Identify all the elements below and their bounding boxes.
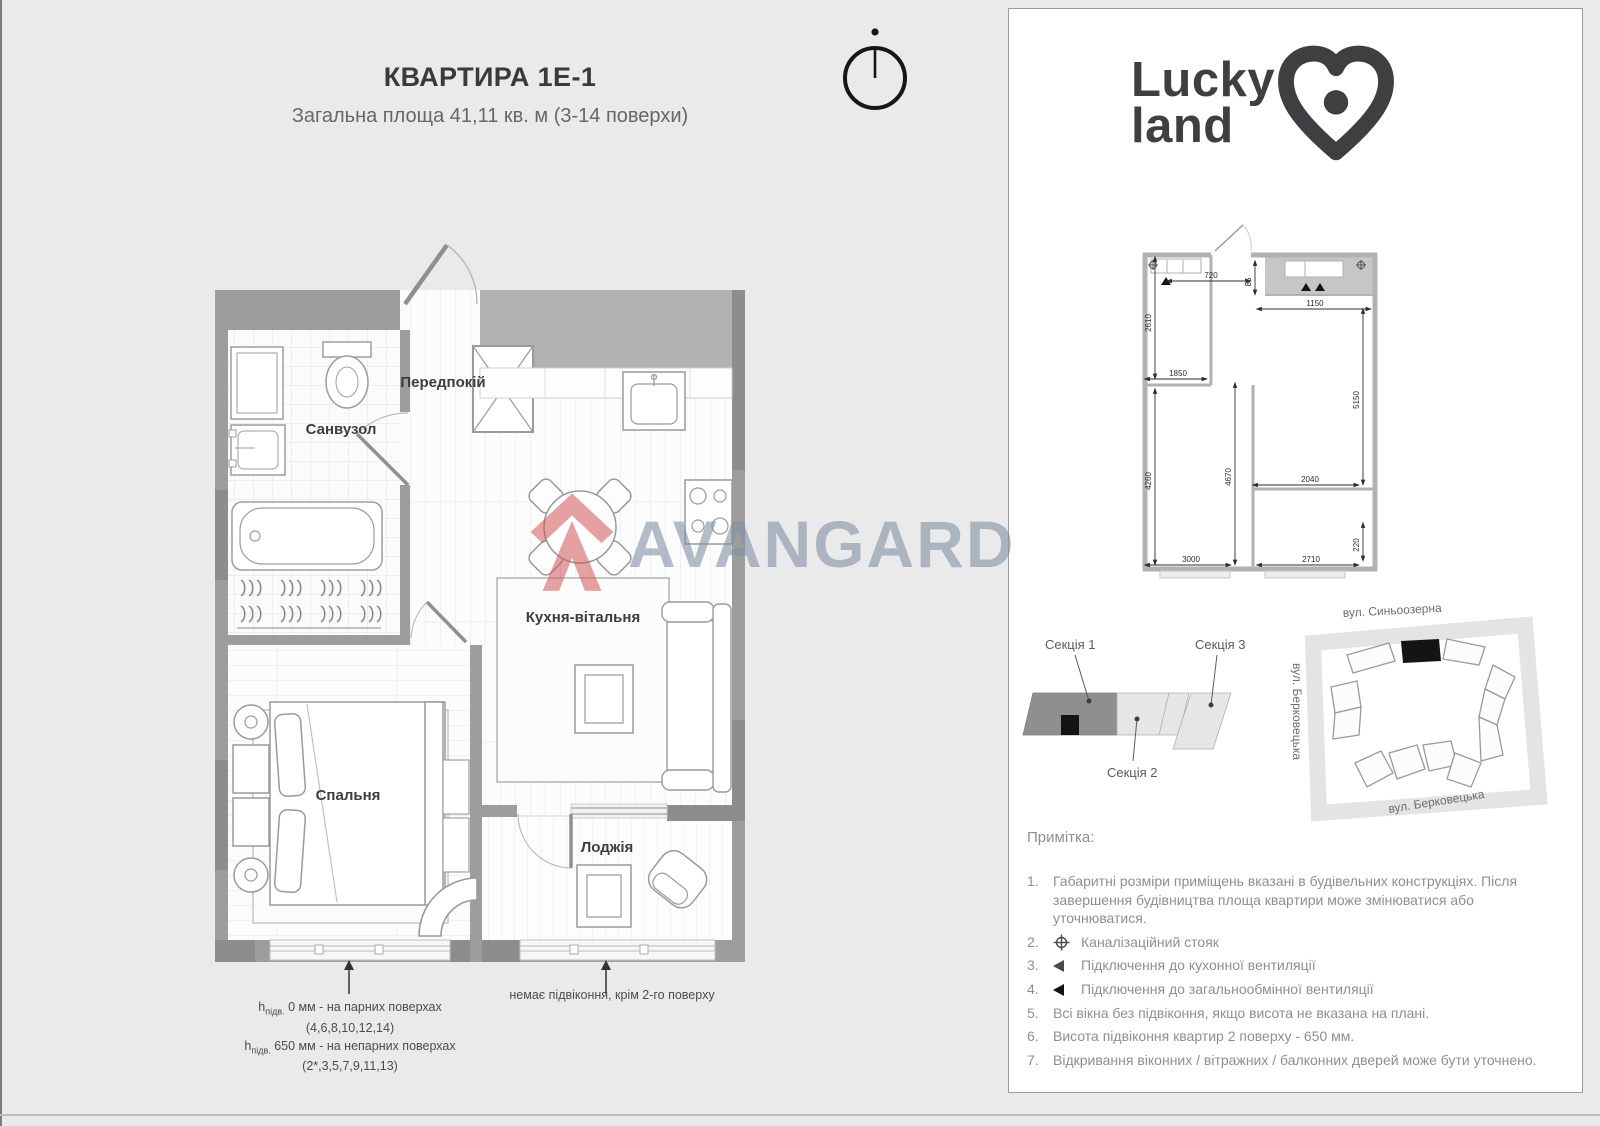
loggia-window (520, 940, 715, 960)
kitchen-sink-icon (623, 372, 685, 430)
dimension-label: 2710 (1302, 555, 1320, 564)
sofa-icon (662, 602, 731, 792)
note-item: 3. Підключення до кухонної вентиляції (1027, 956, 1572, 975)
bathroom-sink-icon (229, 425, 285, 475)
dimension-label: 720 (1204, 271, 1218, 280)
sill-arrow-left-icon (343, 960, 355, 996)
note-item: 6. Висота підвіконня квартир 2 поверху -… (1027, 1027, 1572, 1046)
page-subtitle: Загальна площа 41,11 кв. м (3-14 поверхи… (140, 105, 840, 128)
brand-logo-line2: land (1131, 103, 1275, 149)
dimension-label: 1150 (1306, 299, 1324, 308)
mini-plan: 720 85 1150 2610 1850 4260 4670 5150 204… (1115, 217, 1415, 585)
kitchen-loggia-window (571, 804, 667, 818)
sill-note-left: hпідв. 0 мм - на парних поверхах (4,6,8,… (190, 998, 510, 1075)
kitchen-vent-icon (1053, 956, 1081, 975)
section-2-label: Секція 2 (1107, 765, 1158, 780)
brand-logo-line1: Lucky (1131, 57, 1275, 103)
drain-icon (1053, 933, 1081, 952)
bedroom-window (270, 940, 450, 960)
stove-icon (685, 480, 732, 544)
sill-note-left-line2: hпідв. 650 мм - на непарних поверхах (190, 1037, 510, 1058)
sill-note-right: немає підвіконня, крім 2-го поверху (462, 986, 762, 1004)
section-diagram: Секція 1 Секція 3 Секція 2 (1017, 631, 1277, 786)
section-1-label: Секція 1 (1045, 637, 1096, 652)
notes-heading: Примітка: (1027, 829, 1572, 846)
heart-logo-icon (1275, 45, 1397, 167)
dimension-label: 2610 (1144, 314, 1153, 332)
mini-plan-dimensions (1149, 261, 1371, 565)
street-label-top: вул. Синьоозерна (1342, 601, 1442, 620)
dimension-label: 4670 (1224, 468, 1233, 486)
mini-plan-walls (1143, 225, 1377, 578)
plan-header: КВАРТИРА 1Е-1 Загальна площа 41,11 кв. м… (140, 62, 840, 128)
note-item: 2. Каналізаційний стояк (1027, 933, 1572, 952)
page: { "header": { "title": "КВАРТИРА 1Е-1", … (0, 0, 1600, 1126)
room-label-kitchen-living: Кухня-вітальня (526, 609, 640, 626)
page-title: КВАРТИРА 1Е-1 (140, 62, 840, 93)
coffee-table-icon (575, 665, 633, 733)
bathtub-icon (232, 502, 382, 570)
dimension-label: 220 (1352, 538, 1361, 552)
room-label-hallway: Передпокій (400, 374, 485, 391)
site-map: вул. Синьоозерна вул. Берковецька вул. Б… (1277, 601, 1567, 841)
toilet-icon (323, 342, 371, 408)
brand-card: Lucky land (1008, 8, 1583, 1093)
vent-mark-icon (1161, 277, 1171, 285)
loggia-table-icon (577, 865, 631, 927)
notes: Примітка: 1. Габаритні розміри приміщень… (1027, 829, 1572, 1074)
page-left-edge (0, 0, 2, 1126)
general-vent-icon (1053, 980, 1081, 999)
note-item: 5. Всі вікна без підвіконня, якщо висота… (1027, 1004, 1572, 1023)
section-2-shape (1117, 693, 1189, 735)
brand-logo: Lucky land (1131, 57, 1275, 149)
page-bottom-edge (0, 1114, 1600, 1116)
kitchen-counter (480, 368, 732, 398)
floor-plan: Передпокій Санвузол Кухня-вітальня Спаль… (215, 200, 745, 962)
sill-note-left-floors2: (2*,3,5,7,9,11,13) (190, 1057, 510, 1075)
north-indicator-icon (840, 22, 910, 116)
dimension-label: 2040 (1301, 475, 1319, 484)
washing-machine-icon (231, 347, 283, 419)
room-label-loggia: Лоджія (581, 839, 634, 856)
street-label-left: вул. Берковецька (1290, 663, 1304, 760)
sill-note-left-floors1: (4,6,8,10,12,14) (190, 1019, 510, 1037)
dimension-label: 85 (1244, 277, 1253, 286)
dimension-label: 4260 (1144, 472, 1153, 490)
dimension-label: 1850 (1169, 369, 1187, 378)
note-item: 4. Підключення до загальнообмінної венти… (1027, 980, 1572, 999)
room-label-bedroom: Спальня (316, 787, 381, 804)
section-1-marker (1061, 715, 1079, 735)
note-item: 7. Відкривання віконних / вітражних / ба… (1027, 1051, 1572, 1070)
note-item: 1. Габаритні розміри приміщень вказані в… (1027, 872, 1572, 928)
room-label-bathroom: Санвузол (306, 421, 377, 438)
dimension-label: 5150 (1352, 391, 1361, 409)
map-subject-building (1401, 639, 1441, 663)
section-3-label: Секція 3 (1195, 637, 1246, 652)
bedroom-fixtures (233, 702, 477, 936)
dimension-label: 3000 (1182, 555, 1200, 564)
